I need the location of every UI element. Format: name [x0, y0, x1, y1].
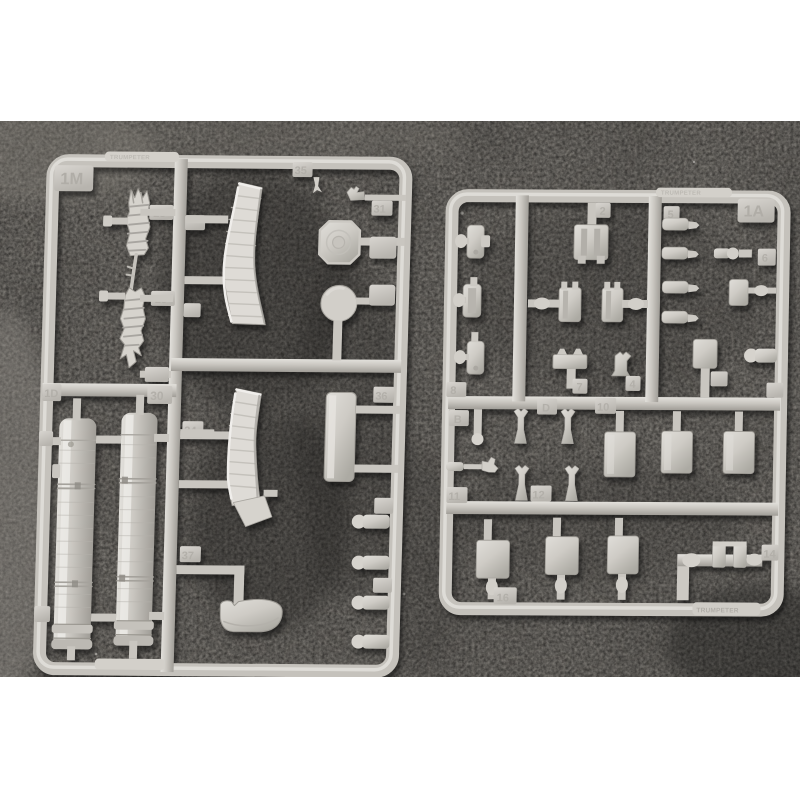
svg-text:12: 12 — [532, 489, 544, 501]
svg-text:14: 14 — [763, 549, 776, 561]
svg-text:1A: 1A — [743, 203, 764, 220]
svg-text:16: 16 — [497, 592, 509, 604]
svg-text:D: D — [542, 403, 550, 415]
svg-text:TRUMPETER: TRUMPETER — [661, 191, 702, 197]
svg-text:8: 8 — [450, 385, 456, 397]
svg-text:31: 31 — [373, 204, 386, 216]
svg-text:36: 36 — [375, 391, 388, 403]
svg-text:10: 10 — [597, 402, 609, 414]
svg-text:7: 7 — [576, 382, 582, 394]
svg-text:1M: 1M — [60, 170, 83, 188]
svg-text:6: 6 — [762, 253, 768, 265]
svg-text:1D: 1D — [44, 388, 58, 400]
svg-text:30: 30 — [150, 389, 164, 403]
svg-text:2: 2 — [599, 206, 605, 218]
svg-text:35: 35 — [294, 165, 307, 177]
svg-text:11: 11 — [448, 491, 460, 503]
svg-text:B: B — [454, 414, 462, 426]
svg-text:TRUMPETER: TRUMPETER — [696, 607, 738, 614]
svg-text:TRUMPETER: TRUMPETER — [110, 155, 151, 161]
svg-text:37: 37 — [182, 550, 195, 562]
svg-text:4: 4 — [629, 379, 636, 391]
